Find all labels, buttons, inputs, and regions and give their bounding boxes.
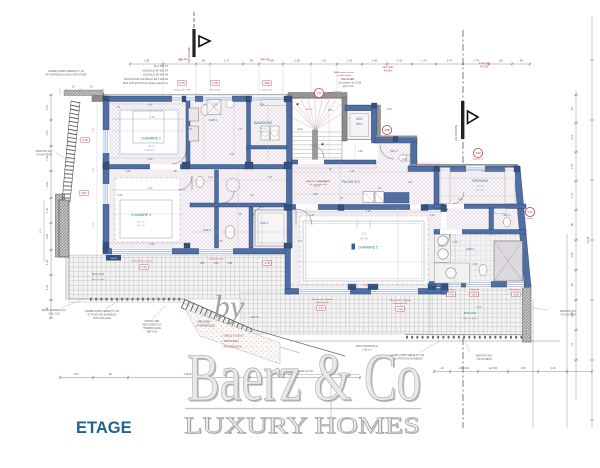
svg-text:44.10m: 44.10m <box>384 69 393 73</box>
svg-text:+ GRILLE 50 A 50 F1: + GRILLE 50 A 50 F1 <box>222 335 244 338</box>
svg-text:Chassis fixe: Chassis fixe <box>509 289 521 291</box>
svg-text:ETAGE: ETAGE <box>76 419 132 437</box>
svg-text:Chassis B: Chassis B <box>469 289 479 291</box>
svg-text:2.30: 2.30 <box>482 170 487 173</box>
svg-text:V15: V15 <box>82 138 88 142</box>
svg-text:V69: V69 <box>264 81 270 85</box>
svg-text:3.00: 3.00 <box>118 194 123 197</box>
svg-text:2.40: 2.40 <box>372 59 378 63</box>
svg-text:44.10S: 44.10S <box>480 65 488 69</box>
svg-text:3.48: 3.48 <box>126 170 131 173</box>
svg-text:3.40: 3.40 <box>150 243 155 246</box>
svg-text:1.38: 1.38 <box>570 252 574 258</box>
svg-text:RECOUVERT ALU: RECOUVERT ALU <box>142 324 162 327</box>
svg-text:1.62: 1.62 <box>45 233 49 239</box>
svg-text:.94: .94 <box>188 128 192 131</box>
svg-text:166.04: 166.04 <box>110 258 117 260</box>
svg-text:KF 2.40: KF 2.40 <box>476 190 484 192</box>
svg-text:SdB 2: SdB 2 <box>466 247 475 251</box>
svg-text:2.30: 2.30 <box>551 367 556 370</box>
svg-text:1.70: 1.70 <box>570 192 574 198</box>
svg-text:MONTANT ALU: MONTANT ALU <box>476 355 492 358</box>
svg-text:163.15: 163.15 <box>260 128 267 130</box>
svg-text:0.02 x 0.02: 0.02 x 0.02 <box>48 314 60 316</box>
svg-text:2.41: 2.41 <box>397 59 403 63</box>
svg-text:.86: .86 <box>570 223 574 227</box>
svg-text:AS DALLE BA 163.04: AS DALLE BA 163.04 <box>142 68 169 72</box>
svg-text:R+1 163.74: R+1 163.74 <box>154 64 168 68</box>
svg-text:7.10: 7.10 <box>458 198 463 201</box>
svg-text:1.41: 1.41 <box>321 59 327 63</box>
svg-text:3.41: 3.41 <box>310 214 315 217</box>
svg-text:SdB 1: SdB 1 <box>209 118 218 122</box>
svg-text:1.77: 1.77 <box>238 128 243 131</box>
svg-text:V7b: V7b <box>527 210 533 214</box>
svg-text:pas+1kg: pas+1kg <box>260 58 270 61</box>
svg-text:163.74: 163.74 <box>306 109 313 111</box>
svg-text:ESCALIER: ESCALIER <box>342 77 355 81</box>
svg-text:ASC: ASC <box>356 117 364 121</box>
svg-text:SYNTHETIQUE.: SYNTHETIQUE. <box>196 324 215 328</box>
svg-text:26/0.064: 26/0.064 <box>459 367 469 370</box>
svg-text:V10: V10 <box>318 306 324 310</box>
svg-text:THERMOLAQUE: THERMOLAQUE <box>143 327 161 330</box>
svg-text:et volet roulant: et volet roulant <box>337 74 352 77</box>
svg-text:1/2 COUPE: 1/2 COUPE <box>187 47 191 63</box>
svg-text:24x1.19m: 24x1.19m <box>382 65 393 69</box>
svg-text:1/2 COUPE: 1/2 COUPE <box>454 125 458 141</box>
svg-text:V7B: V7B <box>264 261 270 265</box>
svg-text:V50: V50 <box>214 261 219 265</box>
svg-text:MONTANT ALU: MONTANT ALU <box>560 310 576 313</box>
svg-text:1.41: 1.41 <box>45 207 49 213</box>
svg-text:770 HAUTEUR: 770 HAUTEUR <box>560 314 576 317</box>
svg-text:KF 1.60: KF 1.60 <box>147 150 155 152</box>
svg-text:Chassis fixe + Chassis: Chassis fixe + Chassis <box>312 299 333 301</box>
svg-text:Chassis fixe: Chassis fixe <box>209 90 221 92</box>
svg-text:Chassis fixe: Chassis fixe <box>261 90 273 92</box>
svg-text:2.30: 2.30 <box>473 263 478 266</box>
svg-text:163.15: 163.15 <box>477 186 484 188</box>
svg-text:.90: .90 <box>570 283 574 287</box>
svg-text:1.10: 1.10 <box>208 176 213 179</box>
svg-text:V75: V75 <box>179 81 185 85</box>
svg-text:.40: .40 <box>440 367 444 370</box>
svg-text:.30: .30 <box>116 106 120 109</box>
svg-text:770 HAUTEUR: 770 HAUTEUR <box>36 154 52 157</box>
svg-text:PL: PL <box>378 186 382 190</box>
svg-text:1.47: 1.47 <box>268 176 273 179</box>
svg-text:V56: V56 <box>228 261 233 265</box>
svg-text:1.41: 1.41 <box>45 284 49 290</box>
svg-text:ET FIXATIONS ser RAIL SUR COTE: ET FIXATIONS ser RAIL SUR COTEE <box>46 74 87 77</box>
svg-text:1.74: 1.74 <box>421 59 427 63</box>
svg-text:KF 1.60: KF 1.60 <box>137 222 145 224</box>
svg-text:a0 3.90: a0 3.90 <box>489 367 498 370</box>
svg-text:1.98: 1.98 <box>387 108 392 111</box>
svg-text:CHAMBRE 3: CHAMBRE 3 <box>131 213 151 217</box>
svg-text:2.41 (1g): 2.41 (1g) <box>479 61 490 65</box>
svg-text:1.30: 1.30 <box>213 104 218 107</box>
svg-text:V7a: V7a <box>448 293 454 297</box>
svg-text:2.04: 2.04 <box>230 153 235 156</box>
svg-text:4.93: 4.93 <box>148 158 153 161</box>
svg-text:+353.70: +353.70 <box>250 317 259 319</box>
svg-text:PL: PL <box>340 196 344 200</box>
svg-text:1.77: 1.77 <box>224 59 230 63</box>
svg-text:chassis: chassis <box>527 218 534 220</box>
svg-text:giron 0.24: giron 0.24 <box>343 85 354 88</box>
svg-text:GARDE CORPS VERRE HT 1.00: GARDE CORPS VERRE HT 1.00 <box>85 310 120 313</box>
svg-text:1.26: 1.26 <box>521 367 526 370</box>
svg-text:.84: .84 <box>201 59 205 63</box>
svg-text:1.47: 1.47 <box>350 170 355 173</box>
svg-text:1.10: 1.10 <box>45 104 49 110</box>
svg-text:SOUS DALLAGE: SOUS DALLAGE <box>93 317 111 320</box>
svg-text:.94: .94 <box>249 59 253 63</box>
svg-text:1.00: 1.00 <box>73 372 79 376</box>
svg-text:1.41: 1.41 <box>347 59 353 63</box>
svg-text:1.26: 1.26 <box>453 241 458 244</box>
svg-text:KF 2.00: KF 2.00 <box>259 132 267 134</box>
svg-text:SdB 3: SdB 3 <box>260 221 269 225</box>
svg-text:dalle sur plots: dalle sur plots <box>91 278 105 281</box>
svg-text:Chassis fixe: Chassis fixe <box>444 289 456 291</box>
svg-text:2.04: 2.04 <box>45 181 49 187</box>
svg-text:7.18: 7.18 <box>366 210 371 213</box>
svg-text:V10: V10 <box>397 307 403 311</box>
svg-text:1.26: 1.26 <box>430 214 435 217</box>
svg-text:dalle sur plots: dalle sur plots <box>463 317 477 320</box>
svg-text:CHAMBRE 5: CHAMBRE 5 <box>358 246 378 250</box>
svg-text:option: option <box>356 122 364 126</box>
svg-text:DRESSING: DRESSING <box>472 179 489 183</box>
svg-text:V10: V10 <box>141 265 147 269</box>
svg-text:1.41: 1.41 <box>250 194 255 197</box>
svg-text:.98: .98 <box>173 170 177 173</box>
svg-text:.90: .90 <box>238 213 242 216</box>
svg-text:LUXURY HOMES: LUXURY HOMES <box>184 413 420 438</box>
svg-text:Coulissant 2 VB: Coulissant 2 VB <box>209 258 224 261</box>
svg-text:KF 140: KF 140 <box>360 238 368 241</box>
svg-text:1.13: 1.13 <box>570 134 574 140</box>
svg-text:REF N°W: REF N°W <box>147 332 158 334</box>
svg-text:Coulissant OB: Coulissant OB <box>315 301 329 304</box>
svg-text:Coulissant 1-18: Coulissant 1-18 <box>393 302 408 305</box>
svg-text:Chassis Fixe + Chassis: Chassis Fixe + Chassis <box>131 261 153 263</box>
svg-text:2.30: 2.30 <box>477 307 482 309</box>
svg-text:PELOUSE: PELOUSE <box>198 320 211 324</box>
svg-text:.90: .90 <box>108 372 112 376</box>
svg-text:1.25: 1.25 <box>570 163 574 169</box>
svg-text:3.71: 3.71 <box>362 233 367 236</box>
svg-text:1.13: 1.13 <box>45 130 49 136</box>
svg-text:V58: V58 <box>513 293 519 297</box>
svg-text:by: by <box>214 288 245 324</box>
svg-text:1.47: 1.47 <box>447 59 453 63</box>
svg-text:1.06: 1.06 <box>328 109 333 112</box>
svg-text:BAIE fenetre chassis: BAIE fenetre chassis <box>334 71 355 74</box>
svg-text:1.98: 1.98 <box>358 150 363 153</box>
svg-text:V76: V76 <box>212 81 218 85</box>
svg-text:V59: V59 <box>471 293 477 297</box>
svg-text:MAIN COURANTE ALU: MAIN COURANTE ALU <box>42 309 67 312</box>
svg-text:GARDE CORPS VERRE: GARDE CORPS VERRE <box>306 180 331 183</box>
svg-text:1.41: 1.41 <box>45 259 49 265</box>
svg-text:14.38: 14.38 <box>586 236 590 243</box>
svg-text:BUANDERIE: BUANDERIE <box>254 121 273 125</box>
svg-text:.24: .24 <box>570 107 574 111</box>
svg-text:V67: V67 <box>81 191 87 195</box>
svg-text:BALCON: BALCON <box>92 272 104 276</box>
svg-text:V69: V69 <box>475 151 481 155</box>
svg-text:ISOLANT EN SOUS FACE epais 0.1: ISOLANT EN SOUS FACE epais 0.14 <box>123 81 169 85</box>
svg-text:1.71: 1.71 <box>298 240 303 243</box>
svg-text:2.40: 2.40 <box>298 128 303 131</box>
svg-text:3.70: 3.70 <box>150 116 155 119</box>
svg-text:1.06: 1.06 <box>402 158 407 161</box>
svg-text:V77: V77 <box>316 91 322 95</box>
svg-text:Baerz & Co: Baerz & Co <box>187 339 421 415</box>
svg-text:5.77: 5.77 <box>364 284 369 287</box>
svg-text:.40: .40 <box>519 59 523 63</box>
svg-text:Coupole 90: Coupole 90 <box>473 159 484 161</box>
svg-text:chassis fixe: chassis fixe <box>382 137 393 139</box>
svg-text:V50: V50 <box>200 261 205 265</box>
svg-text:PALIER N+1: PALIER N+1 <box>342 180 360 184</box>
svg-text:770 HAUTEUR: 770 HAUTEUR <box>476 358 492 361</box>
svg-text:1.41: 1.41 <box>408 181 413 184</box>
svg-text:Chassis OF + VB: Chassis OF + VB <box>174 90 191 92</box>
svg-text:.74: .74 <box>570 343 574 347</box>
svg-text:Chassis fixe + Chassis: Chassis fixe + Chassis <box>390 300 411 302</box>
svg-text:A/CAILLE BA 163.45: A/CAILLE BA 163.45 <box>143 73 168 77</box>
svg-text:V68: V68 <box>384 128 390 132</box>
svg-text:1.08: 1.08 <box>144 59 150 63</box>
svg-text:163.15: 163.15 <box>148 146 155 148</box>
svg-text:POTEAU FER: POTEAU FER <box>145 320 160 323</box>
svg-text:.96: .96 <box>499 59 503 63</box>
svg-text:2.38: 2.38 <box>294 59 300 63</box>
svg-text:BALCON: BALCON <box>464 311 476 315</box>
svg-text:2.05: 2.05 <box>218 240 223 243</box>
svg-text:SOUS FACE LINTEAUX EXT 163.04: SOUS FACE LINTEAUX EXT 163.04 <box>124 77 169 81</box>
svg-text:WC 3: WC 3 <box>390 149 398 153</box>
svg-text:ET FIXATIONS INVISIBLES: ET FIXATIONS INVISIBLES <box>88 314 117 317</box>
svg-text:SdB 4: SdB 4 <box>203 228 212 232</box>
svg-text:1.98: 1.98 <box>260 104 265 107</box>
svg-text:.90: .90 <box>328 168 332 171</box>
svg-text:1.98: 1.98 <box>313 193 318 196</box>
svg-text:CHAMBRE 2: CHAMBRE 2 <box>141 137 161 141</box>
svg-text:KF 2.00: KF 2.00 <box>137 225 145 227</box>
svg-text:3.40: 3.40 <box>148 187 153 190</box>
svg-text:Vol. aut ht de dalle: Vol. aut ht de dalle <box>309 183 328 186</box>
